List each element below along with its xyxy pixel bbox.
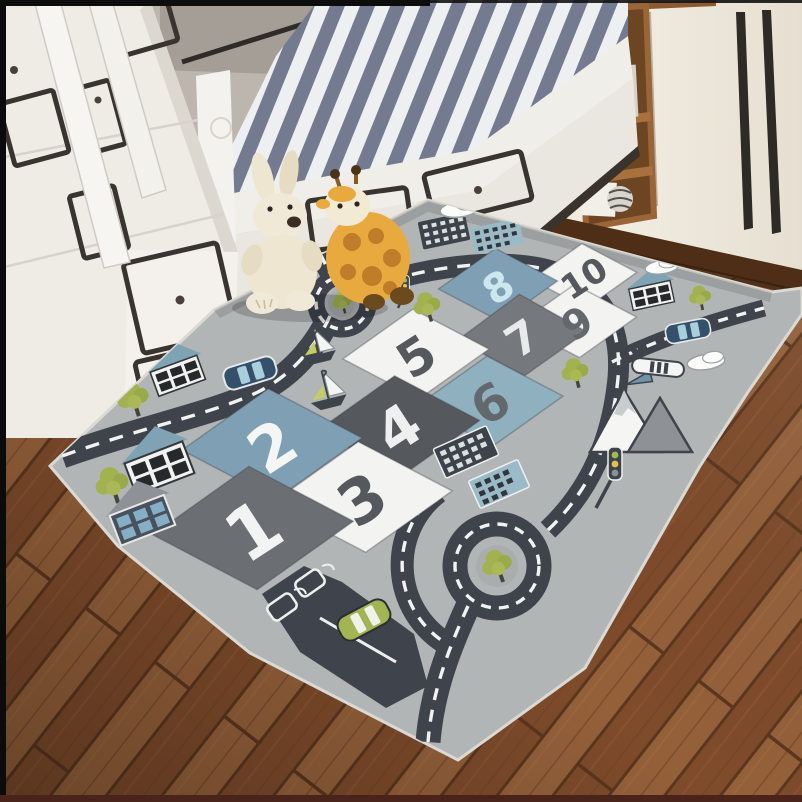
bunny-nose bbox=[287, 217, 301, 228]
photo-edge bbox=[0, 0, 6, 802]
kids-room-photo: 10 9 8 7 6 5 4 3 2 1 bbox=[0, 0, 802, 802]
bunny-foot bbox=[246, 292, 278, 314]
drawer-knob bbox=[474, 186, 482, 194]
bunny-head bbox=[253, 193, 307, 239]
giraffe-ear bbox=[316, 199, 330, 209]
drawer-knob bbox=[176, 296, 185, 305]
photo-edge bbox=[0, 795, 802, 802]
room-scene: 10 9 8 7 6 5 4 3 2 1 bbox=[0, 0, 802, 802]
giraffe-foot bbox=[390, 287, 414, 305]
giraffe-foot bbox=[363, 294, 385, 310]
drawer-knob bbox=[10, 66, 18, 74]
drawer-knob bbox=[95, 97, 102, 104]
photo-edge bbox=[0, 0, 430, 6]
bed-post-finial bbox=[211, 118, 231, 138]
bunny-foot bbox=[285, 291, 315, 311]
striped-ball bbox=[607, 186, 633, 212]
